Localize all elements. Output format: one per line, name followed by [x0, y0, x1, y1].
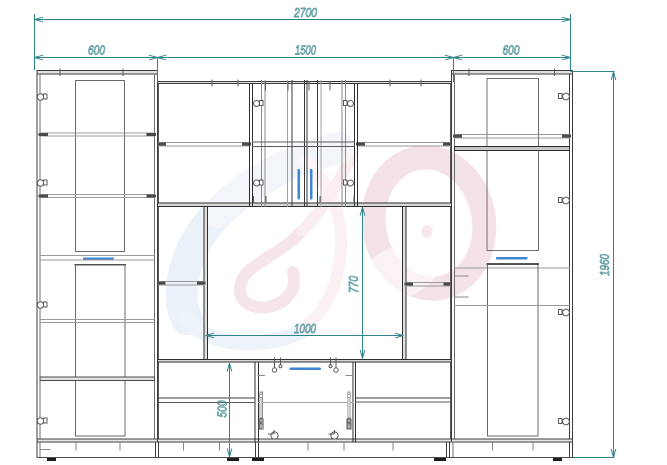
svg-text:2700: 2700 [293, 6, 317, 20]
svg-text:1500: 1500 [295, 44, 316, 58]
svg-text:1960: 1960 [598, 254, 612, 276]
svg-text:770: 770 [347, 276, 361, 293]
svg-text:500: 500 [216, 400, 230, 417]
svg-text:600: 600 [88, 44, 105, 58]
svg-text:600: 600 [503, 44, 520, 58]
svg-text:1000: 1000 [294, 322, 316, 336]
